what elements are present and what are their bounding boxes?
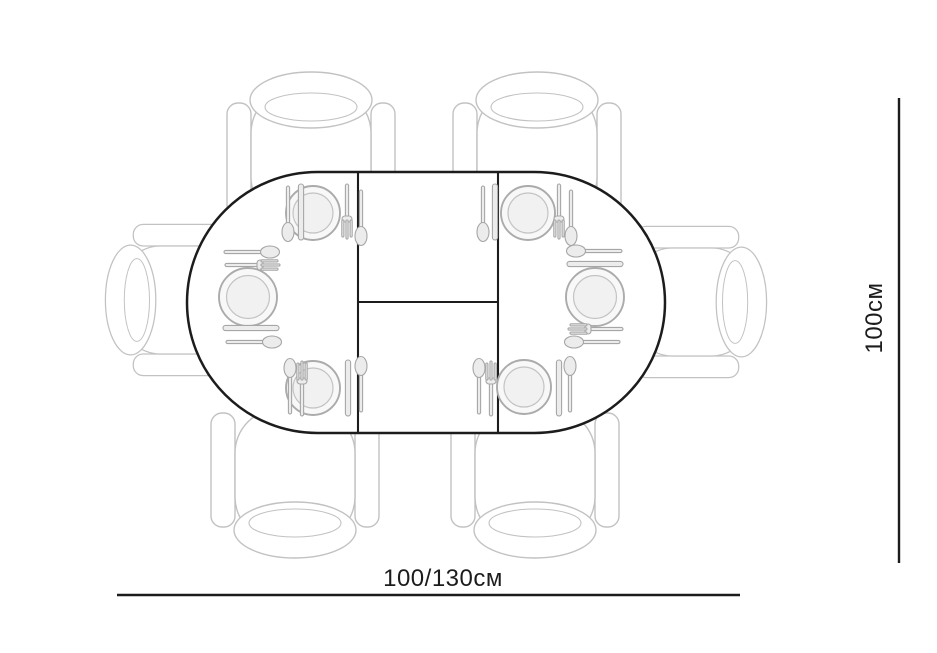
plate bbox=[501, 186, 555, 240]
width-dimension-label: 100/130см bbox=[383, 565, 503, 592]
knife bbox=[556, 360, 561, 416]
plate bbox=[566, 268, 624, 326]
knife bbox=[492, 184, 497, 240]
knife bbox=[567, 261, 623, 266]
plate bbox=[497, 360, 551, 414]
knife bbox=[298, 184, 303, 240]
furniture-dimension-diagram: 100/130см 100см bbox=[0, 0, 937, 653]
diagram-canvas: 100/130см 100см bbox=[0, 0, 937, 653]
knife bbox=[223, 325, 279, 330]
depth-dimension-label: 100см bbox=[861, 282, 888, 353]
knife bbox=[345, 360, 350, 416]
plate bbox=[219, 268, 277, 326]
